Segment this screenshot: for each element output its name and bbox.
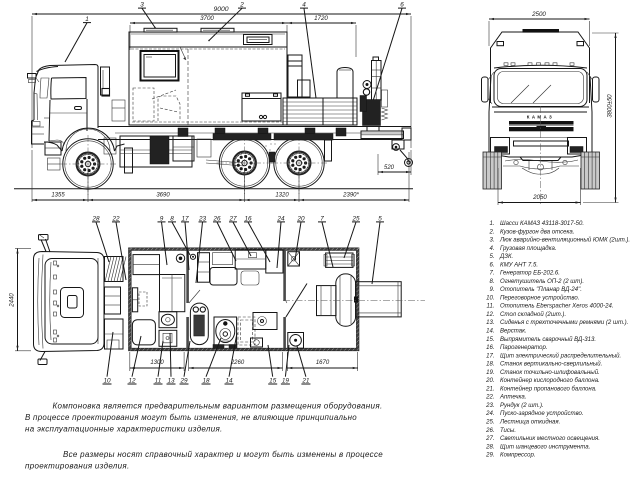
svg-text:11.: 11. bbox=[487, 304, 495, 310]
svg-text:В процессе проектирования могу: В процессе проектирования могут быть изм… bbox=[25, 413, 357, 422]
svg-text:Все размеры носят справочный х: Все размеры носят справочный характер и … bbox=[63, 450, 383, 459]
svg-text:12.: 12. bbox=[486, 312, 494, 318]
svg-text:2440: 2440 bbox=[10, 293, 16, 308]
svg-text:20.: 20. bbox=[485, 378, 494, 384]
svg-text:26.: 26. bbox=[485, 428, 494, 434]
svg-text:Грузовая площадка.: Грузовая площадка. bbox=[500, 246, 557, 252]
svg-text:14: 14 bbox=[225, 378, 233, 385]
svg-text:13.: 13. bbox=[486, 320, 494, 326]
svg-text:5.: 5. bbox=[489, 254, 494, 260]
svg-text:26: 26 bbox=[212, 215, 221, 222]
svg-text:20: 20 bbox=[296, 215, 305, 222]
svg-text:8.: 8. bbox=[489, 279, 494, 285]
svg-text:Отопитель Eberspacher Xeros 40: Отопитель Eberspacher Xeros 4000-24. bbox=[500, 304, 614, 310]
svg-text:2: 2 bbox=[239, 2, 244, 9]
svg-text:3700: 3700 bbox=[200, 15, 214, 22]
svg-text:Отопитель "Планар ВД-24".: Отопитель "Планар ВД-24". bbox=[500, 287, 582, 293]
svg-text:7.: 7. bbox=[489, 271, 494, 277]
svg-text:3800±50: 3800±50 bbox=[608, 94, 614, 118]
svg-text:19: 19 bbox=[282, 378, 290, 385]
svg-text:Светильник местного освещения.: Светильник местного освещения. bbox=[500, 436, 600, 442]
svg-text:21: 21 bbox=[301, 378, 310, 385]
svg-text:3.: 3. bbox=[489, 238, 494, 244]
svg-text:28.: 28. bbox=[485, 444, 494, 450]
svg-text:22.: 22. bbox=[485, 395, 494, 401]
svg-text:520: 520 bbox=[384, 165, 395, 171]
svg-text:14.: 14. bbox=[486, 329, 494, 335]
svg-text:15: 15 bbox=[269, 378, 277, 385]
svg-text:Компоновка является предварите: Компоновка является предварительным вари… bbox=[53, 402, 383, 411]
svg-text:8: 8 bbox=[170, 215, 174, 222]
svg-text:3: 3 bbox=[140, 2, 144, 9]
svg-text:Щит шанцевого инструмента.: Щит шанцевого инструмента. bbox=[500, 444, 590, 450]
svg-text:18.: 18. bbox=[486, 362, 494, 368]
svg-text:21.: 21. bbox=[485, 386, 494, 392]
svg-text:28: 28 bbox=[91, 215, 100, 222]
svg-text:Выпрямитель сварочный ВД-313.: Выпрямитель сварочный ВД-313. bbox=[500, 336, 596, 343]
svg-text:Генератор ЕБ-202.6.: Генератор ЕБ-202.6. bbox=[500, 271, 560, 277]
svg-text:9000: 9000 bbox=[213, 6, 228, 13]
svg-text:4.: 4. bbox=[489, 246, 494, 252]
svg-text:Аптечка.: Аптечка. bbox=[499, 395, 526, 401]
svg-text:16.: 16. bbox=[486, 345, 494, 351]
svg-text:Кузов-фургон два отсека.: Кузов-фургон два отсека. bbox=[500, 229, 574, 235]
svg-text:15.: 15. bbox=[486, 337, 494, 343]
svg-text:22: 22 bbox=[111, 215, 120, 222]
svg-text:2500: 2500 bbox=[531, 11, 546, 18]
svg-text:3690: 3690 bbox=[156, 193, 170, 199]
svg-text:19.: 19. bbox=[486, 370, 494, 376]
svg-text:23: 23 bbox=[198, 215, 207, 222]
svg-text:27: 27 bbox=[228, 215, 237, 222]
svg-text:24.: 24. bbox=[485, 411, 494, 417]
svg-text:Рундук (2 шт.).: Рундук (2 шт.). bbox=[500, 403, 544, 409]
svg-text:17.: 17. bbox=[486, 353, 494, 359]
svg-text:Станок вертикально-сверлильный: Станок вертикально-сверлильный. bbox=[500, 361, 602, 368]
svg-text:Стол складной (2шт.).: Стол складной (2шт.). bbox=[500, 311, 566, 318]
svg-text:13: 13 bbox=[167, 378, 175, 385]
svg-text:Переговорное устройство.: Переговорное устройство. bbox=[500, 294, 579, 301]
svg-text:проектирования изделия.: проектирования изделия. bbox=[25, 462, 129, 471]
svg-text:Контейнер пропанового баллона.: Контейнер пропанового баллона. bbox=[500, 385, 597, 392]
svg-text:27.: 27. bbox=[485, 436, 494, 442]
svg-text:Контейнер кислородного баллона: Контейнер кислородного баллона. bbox=[500, 377, 600, 384]
svg-text:29.: 29. bbox=[485, 453, 494, 459]
svg-text:10: 10 bbox=[103, 378, 111, 385]
svg-text:Парогенератор.: Парогенератор. bbox=[500, 345, 548, 351]
svg-text:Верстак.: Верстак. bbox=[500, 329, 527, 335]
svg-text:Станок точильно-шлифовальный.: Станок точильно-шлифовальный. bbox=[500, 369, 600, 376]
svg-text:1300: 1300 bbox=[150, 360, 164, 366]
svg-text:1670: 1670 bbox=[316, 360, 330, 366]
svg-text:29: 29 bbox=[179, 378, 188, 385]
svg-text:9.: 9. bbox=[489, 287, 494, 293]
svg-text:1320: 1320 bbox=[275, 193, 289, 199]
svg-text:24: 24 bbox=[276, 215, 285, 222]
svg-text:2.: 2. bbox=[488, 229, 494, 235]
svg-text:9: 9 bbox=[160, 215, 164, 222]
svg-text:Люк аварийно-вентиляционный ЮМ: Люк аварийно-вентиляционный ЮМК (2шт.). bbox=[499, 237, 630, 244]
svg-text:1720: 1720 bbox=[314, 15, 328, 22]
svg-text:5: 5 bbox=[378, 215, 382, 222]
svg-text:Сиденья с трехточечными ремням: Сиденья с трехточечными ремнями (2 шт.). bbox=[500, 320, 628, 326]
svg-text:Лестница откидная.: Лестница откидная. bbox=[499, 419, 560, 425]
svg-text:1.: 1. bbox=[489, 221, 494, 227]
svg-text:на эксплуатационные характерис: на эксплуатационные характеристики издел… bbox=[25, 425, 223, 434]
svg-text:Пуско-зарядное устройство.: Пуско-зарядное устройство. bbox=[500, 410, 584, 417]
svg-text:4: 4 bbox=[302, 2, 306, 9]
svg-text:Щит электрический распределите: Щит электрический распределительный. bbox=[500, 352, 621, 359]
svg-text:23.: 23. bbox=[485, 403, 494, 409]
svg-text:10.: 10. bbox=[486, 295, 494, 301]
svg-text:1: 1 bbox=[85, 16, 89, 23]
svg-text:ДЗК.: ДЗК. bbox=[499, 254, 513, 260]
svg-text:17: 17 bbox=[181, 215, 189, 222]
svg-text:6: 6 bbox=[400, 2, 404, 9]
svg-text:7: 7 bbox=[320, 215, 324, 222]
svg-text:25: 25 bbox=[351, 215, 360, 222]
svg-text:16: 16 bbox=[244, 215, 252, 222]
svg-text:Тисы.: Тисы. bbox=[500, 428, 516, 434]
svg-text:11: 11 bbox=[155, 378, 162, 385]
svg-text:КМУ АНТ 7.5.: КМУ АНТ 7.5. bbox=[500, 262, 538, 268]
svg-text:25.: 25. bbox=[485, 419, 494, 425]
svg-text:1355: 1355 bbox=[51, 193, 65, 199]
svg-text:2390*: 2390* bbox=[342, 193, 359, 199]
svg-text:18: 18 bbox=[202, 378, 210, 385]
svg-text:6.: 6. bbox=[489, 262, 494, 268]
svg-text:Огнетушитель ОП-2 (2 шт).: Огнетушитель ОП-2 (2 шт). bbox=[500, 279, 584, 285]
svg-text:2050: 2050 bbox=[532, 194, 547, 201]
svg-text:Компрессор.: Компрессор. bbox=[500, 453, 536, 459]
svg-text:Шасси КАМАЗ 43118-3017-50.: Шасси КАМАЗ 43118-3017-50. bbox=[500, 221, 584, 227]
svg-text:12: 12 bbox=[128, 378, 136, 385]
